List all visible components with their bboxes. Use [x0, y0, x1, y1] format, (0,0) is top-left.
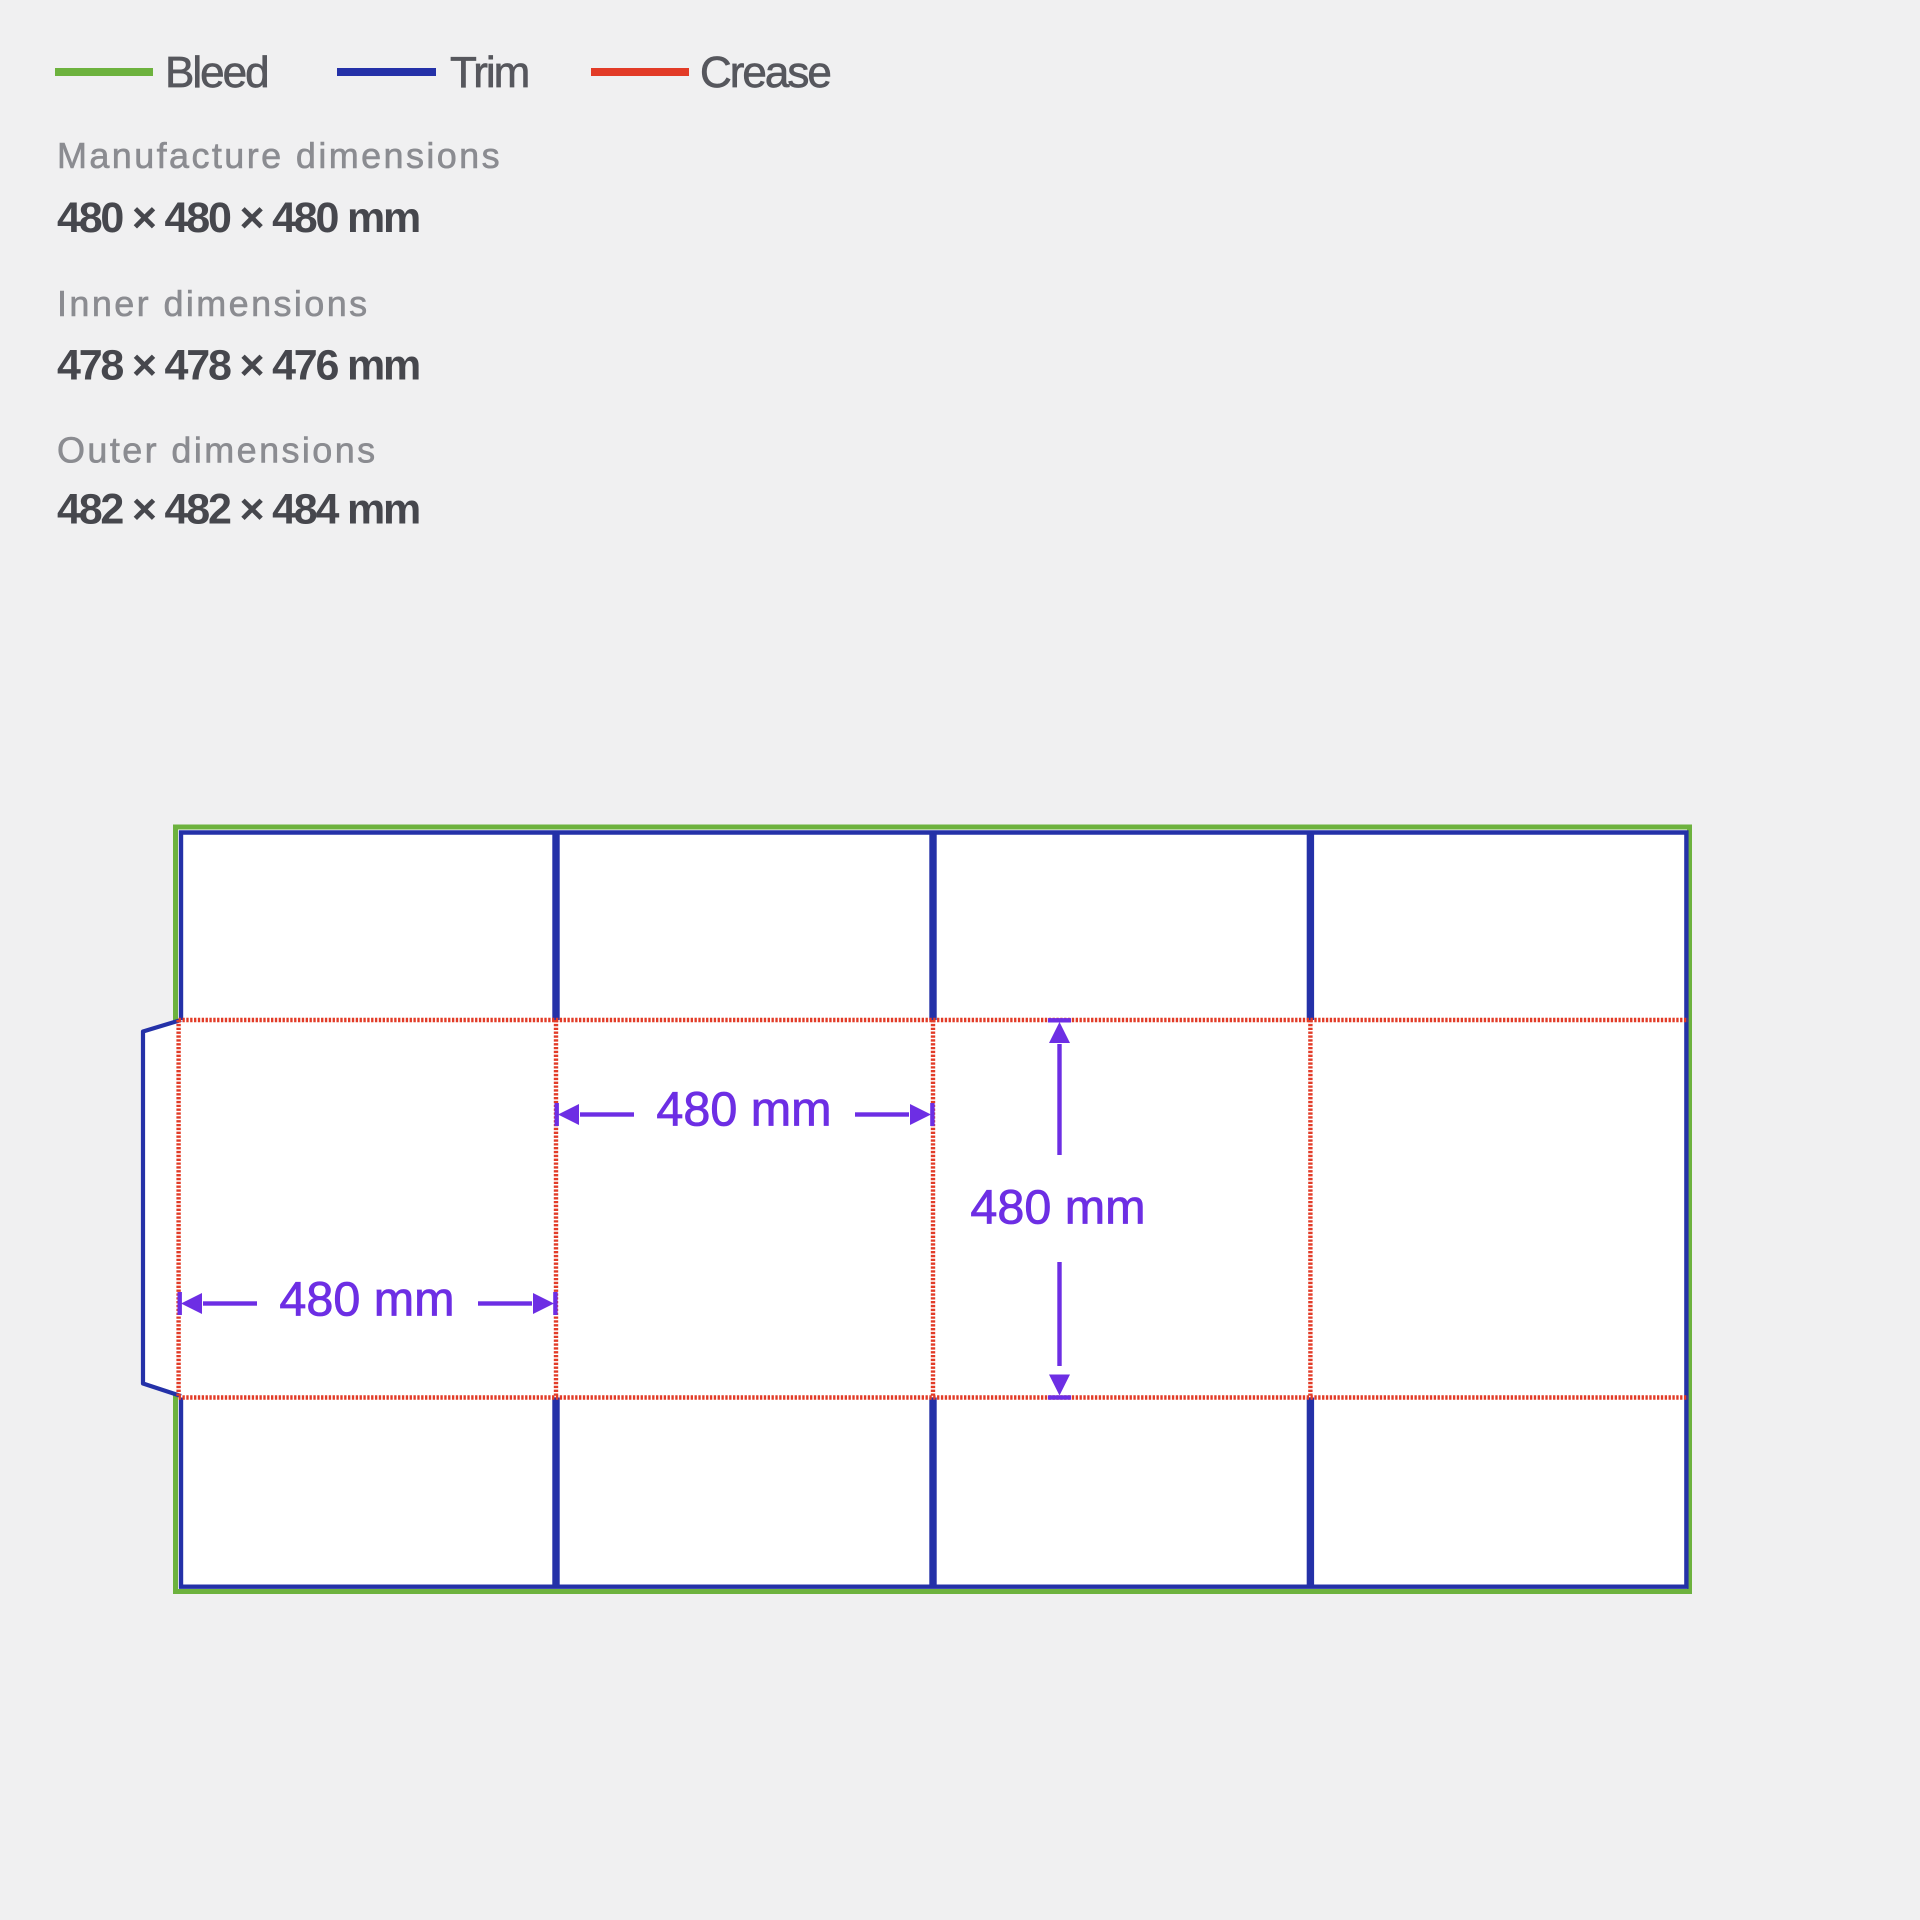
svg-text:Manufacture dimensions: Manufacture dimensions — [57, 135, 502, 176]
svg-text:Inner dimensions: Inner dimensions — [57, 283, 370, 324]
svg-text:Trim: Trim — [450, 48, 528, 97]
svg-text:Crease: Crease — [700, 48, 830, 97]
svg-text:480 × 480 × 480 mm: 480 × 480 × 480 mm — [57, 194, 419, 242]
svg-text:478 × 478 × 476 mm: 478 × 478 × 476 mm — [57, 342, 419, 390]
svg-text:480 mm: 480 mm — [279, 1273, 454, 1327]
svg-text:Outer dimensions: Outer dimensions — [57, 430, 378, 471]
svg-text:480 mm: 480 mm — [656, 1083, 831, 1137]
svg-text:480 mm: 480 mm — [970, 1181, 1145, 1235]
svg-text:Bleed: Bleed — [165, 48, 268, 97]
svg-text:482 × 482 × 484 mm: 482 × 482 × 484 mm — [57, 486, 419, 534]
